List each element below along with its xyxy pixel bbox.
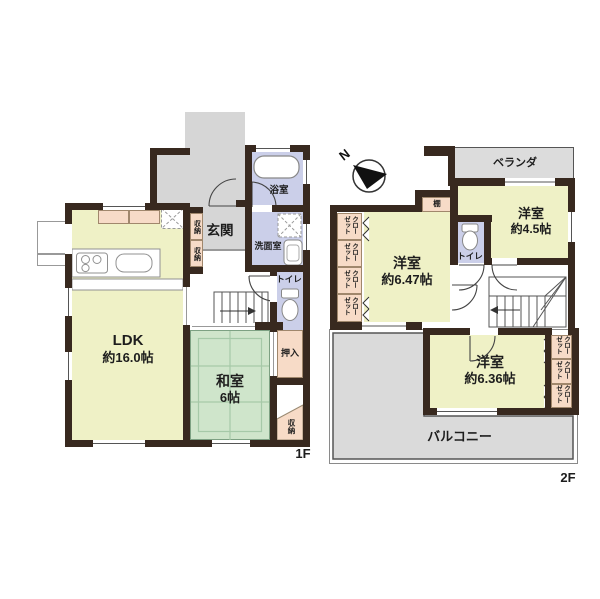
room-washroom [252, 212, 303, 265]
closet-label: クローゼット [342, 216, 358, 238]
compass-north-label: N [336, 146, 353, 164]
genkan-area [157, 155, 245, 203]
toilet-1f-label: トイレ [275, 274, 303, 285]
ldk-name: LDK [113, 332, 144, 350]
back-door-panel [37, 221, 67, 254]
closet: クローゼット [337, 294, 362, 322]
window [303, 224, 310, 250]
window [362, 322, 406, 330]
bath-label: 浴室 [258, 185, 300, 197]
wall [183, 210, 190, 447]
bedroom-6_36-size: 約6.36帖 [464, 371, 515, 386]
closet-label: クローゼット [554, 385, 570, 407]
bedroom-4_5-label: 洋室 約4.5帖 [495, 204, 567, 238]
closet-label: クローゼット [554, 361, 570, 383]
wall [272, 205, 310, 212]
window [505, 178, 555, 186]
toilet-2f-label: トイレ [456, 251, 484, 262]
door-opening [470, 328, 498, 335]
window [212, 440, 250, 447]
bedroom-4_5-name: 洋室 [518, 206, 544, 221]
wall [303, 145, 310, 447]
closet-label: クローゼット [342, 243, 358, 265]
window [303, 160, 310, 184]
closet: クローゼット [551, 335, 572, 359]
genkan-label: 玄関 [195, 222, 245, 240]
floor1-label: 1F [288, 446, 318, 462]
bedroom-6_47-name: 洋室 [393, 255, 421, 272]
wall [330, 205, 337, 330]
window [65, 352, 72, 380]
bedroom-4_5-door [492, 265, 517, 290]
sliding-door [183, 287, 190, 325]
wall [424, 146, 455, 156]
wall [517, 258, 575, 265]
wall [330, 205, 422, 212]
closet: クローゼット [337, 213, 362, 240]
stairs-2f [489, 277, 566, 327]
corner-storage-label: 収納 [285, 413, 298, 439]
closet-label: クローゼット [554, 336, 570, 358]
shelf-label: 棚 [422, 198, 452, 210]
closet: クローゼット [551, 359, 572, 384]
wall [415, 190, 422, 212]
veranda-label: ベランダ [470, 156, 560, 170]
floorplan-canvas: N [0, 0, 600, 599]
wall [572, 328, 579, 415]
wall [190, 267, 203, 274]
balcony-label: バルコニー [412, 429, 507, 445]
window [568, 212, 575, 242]
hall-storage-2: 収納 [190, 240, 203, 267]
wall [236, 200, 245, 207]
toilet-2f-door [459, 265, 484, 290]
bedroom-6_36-label: 洋室 約6.36帖 [452, 352, 528, 388]
closet: クローゼット [551, 384, 572, 408]
room-ldk [72, 210, 183, 440]
window [93, 440, 145, 447]
bedroom-6_36-name: 洋室 [476, 354, 504, 371]
window [437, 408, 497, 415]
back-door-opening [65, 224, 72, 254]
bedroom-6_47-door [452, 285, 477, 310]
bedroom-4_5-size: 約4.5帖 [511, 222, 552, 236]
window [65, 288, 72, 316]
wall [270, 378, 310, 385]
hall-storage-2-label: 収納 [192, 247, 202, 261]
back-door-step [37, 254, 67, 266]
compass: N [336, 146, 387, 192]
oshiire-label: 押入 [277, 347, 303, 359]
sliding-door [270, 332, 277, 376]
wall [245, 145, 252, 212]
wall [150, 148, 157, 210]
kitchen-cabinet [129, 210, 160, 224]
closet-label: クローゼット [342, 270, 358, 292]
washroom-label: 洗面室 [246, 240, 290, 252]
bedroom-6_47-size: 約6.47帖 [381, 272, 432, 287]
sliding-door [192, 323, 255, 330]
compass-needle [353, 165, 387, 189]
wall [245, 265, 310, 272]
wall [255, 322, 283, 330]
ldk-size: 約16.0帖 [102, 350, 153, 365]
closet: クローゼット [337, 267, 362, 294]
ldk-label: LDK 約16.0帖 [78, 328, 178, 370]
closet-label: クローゼット [342, 297, 358, 319]
wall [423, 328, 430, 415]
entrance-porch-area [185, 112, 245, 158]
window [103, 203, 145, 210]
closet: クローゼット [337, 240, 362, 267]
bedroom-6_47-label: 洋室 約6.47帖 [370, 253, 444, 289]
kitchen-cabinet [98, 210, 129, 224]
washitsu-size: 6帖 [220, 390, 240, 405]
washitsu-label: 和室 6帖 [195, 370, 265, 408]
wall [484, 258, 492, 265]
window [256, 145, 290, 152]
washitsu-name: 和室 [216, 373, 244, 390]
room-bath [252, 152, 303, 205]
floor2-label: 2F [553, 470, 583, 486]
